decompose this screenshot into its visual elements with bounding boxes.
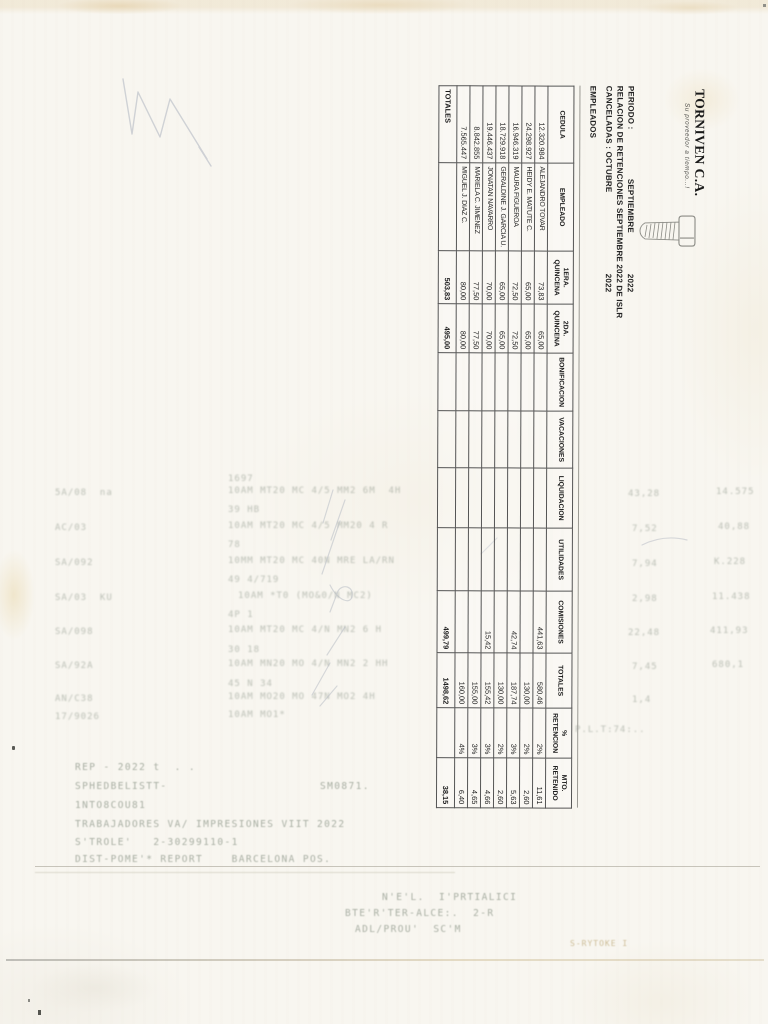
table-cell	[456, 411, 469, 468]
table-cell: 160,00	[455, 653, 468, 708]
table-cell: 15,42	[481, 591, 494, 653]
table-cell: 155,42	[481, 653, 494, 708]
table-cell	[468, 591, 481, 653]
col-header-liquidacion: LIQUIDACION	[546, 468, 572, 528]
table-cell: 11,61	[532, 758, 545, 808]
table-cell	[481, 528, 494, 591]
table-cell	[469, 411, 482, 468]
table-cell: 2%	[494, 708, 507, 758]
empleados-label: EMPLEADOS	[588, 86, 597, 139]
col-header-empleado: EMPLEADO	[547, 163, 573, 251]
table-cell	[508, 353, 521, 411]
table-cell	[521, 353, 534, 411]
totals-cell: 1498,62	[437, 653, 455, 708]
scanned-page: 16975A/08 na10AM MT20 MC 4/5 MM2 6M 4H43…	[0, 0, 768, 1024]
table-cell: 580,46	[533, 653, 546, 708]
table-cell: 19.446.437	[483, 86, 496, 163]
table-cell: GERALDINE J. GARCIA U.	[495, 163, 508, 251]
totals-cell	[437, 708, 455, 758]
table-cell: 24.298.927	[522, 86, 535, 163]
table-cell: MARIELA C. JIMENEZ	[469, 163, 482, 251]
periodo-label: PERIODO :	[626, 86, 635, 130]
totals-cell: 503,83	[438, 251, 456, 304]
table-cell	[534, 353, 547, 411]
totals-cell: TOTALES	[439, 86, 457, 163]
table-cell: 8.842.855	[470, 86, 483, 163]
col-header-cedula: CEDULA	[548, 86, 574, 163]
col-header-totales: TOTALES	[546, 653, 572, 708]
periodo-value: SEPTIEMBRE	[626, 179, 635, 233]
table-cell: 3%	[481, 708, 494, 758]
table-cell	[494, 591, 507, 653]
totals-cell	[437, 468, 455, 528]
table-cell	[455, 468, 468, 528]
totals-cell	[437, 528, 455, 591]
totals-cell: 495,00	[438, 304, 456, 353]
table-cell: 16.946.319	[509, 86, 522, 163]
table-cell: 77,50	[469, 251, 482, 304]
col-header-bonificacion: BONIFICACION	[547, 353, 573, 411]
table-cell: 65,00	[521, 251, 534, 304]
table-cell: MAURA FIGUEROA	[508, 163, 521, 251]
col-header-utilidades: UTILIDADES	[546, 528, 572, 591]
table-cell	[469, 353, 482, 411]
table-cell: 3%	[507, 708, 520, 758]
document-content: TORNIVEN C.A. Su proveedor a tiempo...! …	[0, 0, 768, 1024]
canceladas-year: 2022	[604, 274, 613, 293]
totals-cell: 499,79	[437, 591, 455, 653]
table-cell	[520, 528, 533, 591]
table-cell: 70,00	[482, 304, 495, 353]
table-cell	[533, 468, 546, 528]
table-cell	[482, 411, 495, 468]
table-cell: 155,00	[468, 653, 481, 708]
periodo-year: 2022	[626, 274, 635, 293]
col-header-1era-: 1ERA.QUINCENA	[547, 251, 573, 304]
table-cell: 2%	[520, 708, 533, 758]
totals-cell: 38,15	[436, 758, 454, 808]
table-cell	[520, 591, 533, 653]
table-cell	[455, 528, 468, 591]
table-cell: MIGUEL J. DIAZ C.	[456, 163, 469, 251]
table-cell: 130,00	[494, 653, 507, 708]
table-cell	[482, 353, 495, 411]
col-header-2da-: 2DA.QUINCENA	[547, 304, 573, 353]
table-cell	[520, 468, 533, 528]
table-cell	[455, 591, 468, 653]
table-cell: 70,00	[482, 251, 495, 304]
table-cell	[495, 353, 508, 411]
col-header-comisiones: COMISIONES	[546, 591, 572, 653]
table-cell: 2%	[533, 708, 546, 758]
table-cell: 80,00	[456, 251, 469, 304]
table-cell: 3%	[468, 708, 481, 758]
table-cell: 18.729.918	[496, 86, 509, 163]
table-cell: 72,50	[508, 251, 521, 304]
table-cell: 80,00	[456, 304, 469, 353]
table-cell: 65,00	[495, 304, 508, 353]
table-cell	[494, 528, 507, 591]
table-cell: ALEJANDRO TOVAR	[534, 163, 547, 251]
table-cell	[481, 468, 494, 528]
header-rule	[577, 86, 581, 808]
table-cell: 441,63	[533, 591, 546, 653]
table-cell: 2,60	[519, 758, 532, 808]
table-cell: 65,00	[534, 304, 547, 353]
table-cell	[521, 411, 534, 468]
table-cell: 4%	[455, 708, 468, 758]
table-cell: 77,50	[469, 304, 482, 353]
table-cell: 4,65	[467, 758, 480, 808]
table-cell	[495, 411, 508, 468]
table-cell: 7.565.447	[457, 86, 470, 163]
company-logo: TORNIVEN C.A. Su proveedor a tiempo...!	[683, 89, 707, 196]
table-cell: 5,63	[506, 758, 519, 808]
table-cell	[508, 411, 521, 468]
col-header--: %RETENCION	[546, 708, 572, 758]
table-cell	[507, 528, 520, 591]
table-cell: 42,74	[507, 591, 520, 653]
company-name: TORNIVEN C.A.	[691, 89, 707, 196]
col-header-mto-: MTO.RETENIDO	[545, 758, 571, 808]
table-cell	[468, 528, 481, 591]
table-cell: 72,50	[508, 304, 521, 353]
retenciones-table: CEDULAEMPLEADO1ERA.QUINCENA2DA.QUINCENAB…	[436, 85, 575, 808]
table-cell: JONATAN NAVARRO	[482, 163, 495, 251]
totals-cell	[438, 353, 456, 411]
table-cell: 4,66	[480, 758, 493, 808]
table-cell: 6,40	[454, 758, 467, 808]
table-cell	[494, 468, 507, 528]
col-header-vacaciones: VACACIONES	[547, 411, 573, 468]
table-cell: 12.320.984	[535, 86, 548, 163]
totals-cell	[438, 411, 456, 468]
table-cell	[468, 468, 481, 528]
table-cell	[534, 411, 547, 468]
table-cell: 2,60	[493, 758, 506, 808]
table-cell: 130,00	[520, 653, 533, 708]
table-cell	[533, 528, 546, 591]
table-cell	[456, 353, 469, 411]
totals-cell	[438, 163, 456, 251]
table-cell: HEIDY E. MATUTE C.	[521, 163, 534, 251]
table-cell: 65,00	[521, 304, 534, 353]
company-tagline: Su proveedor a tiempo...!	[683, 103, 690, 196]
table-cell: 187,74	[507, 653, 520, 708]
table-cell	[507, 468, 520, 528]
relacion-line: RELACION DE RETENCIONES SEPTIEMBRE 2022 …	[615, 86, 625, 319]
canceladas-label: CANCELADAS : OCTUBRE	[604, 86, 613, 193]
bolt-icon	[637, 209, 697, 253]
table-cell: 65,00	[495, 251, 508, 304]
table-cell: 73,83	[534, 251, 547, 304]
